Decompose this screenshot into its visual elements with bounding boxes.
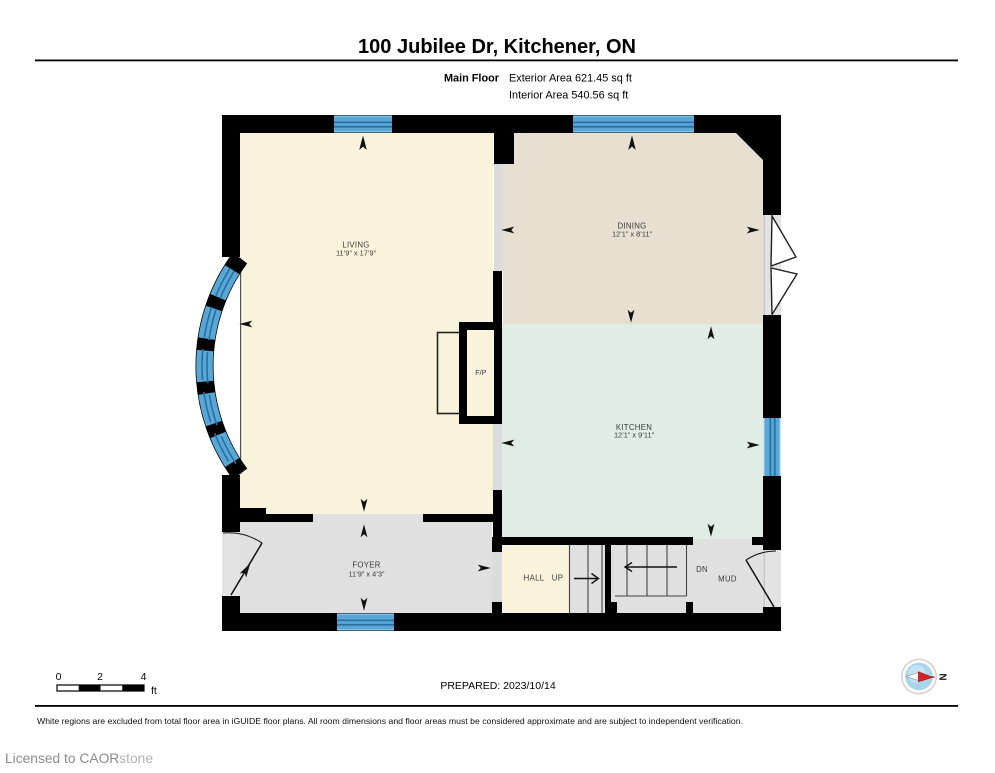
svg-text:F/P: F/P (475, 368, 486, 377)
svg-text:4: 4 (141, 671, 147, 683)
svg-text:MUD: MUD (718, 575, 737, 584)
svg-text:PREPARED: 2023/10/14: PREPARED: 2023/10/14 (440, 680, 556, 692)
svg-text:Interior Area 540.56 sq ft: Interior Area 540.56 sq ft (509, 90, 628, 102)
svg-text:White regions are excluded fro: White regions are excluded from total fl… (37, 716, 743, 726)
svg-text:11’9” x 4’3”: 11’9” x 4’3” (348, 569, 385, 578)
svg-text:100 Jubilee Dr, Kitchener, ON: 100 Jubilee Dr, Kitchener, ON (358, 36, 636, 58)
svg-text:12’1” x 9’11”: 12’1” x 9’11” (614, 431, 655, 440)
svg-text:DN: DN (696, 565, 708, 574)
svg-text:11’9” x 17’9”: 11’9” x 17’9” (336, 248, 377, 257)
svg-text:HALL: HALL (524, 574, 545, 583)
svg-text:FOYER: FOYER (352, 561, 380, 570)
svg-text:ft: ft (151, 685, 157, 697)
svg-text:Licensed to CAORstone: Licensed to CAORstone (5, 751, 153, 766)
svg-text:N: N (936, 673, 947, 680)
svg-text:UP: UP (552, 574, 563, 583)
svg-text:0: 0 (56, 671, 62, 683)
svg-text:12’1” x 8’11”: 12’1” x 8’11” (612, 229, 653, 238)
svg-text:2: 2 (97, 671, 103, 683)
svg-text:Exterior Area 621.45 sq ft: Exterior Area 621.45 sq ft (509, 73, 632, 85)
svg-text:Main Floor: Main Floor (444, 73, 500, 85)
